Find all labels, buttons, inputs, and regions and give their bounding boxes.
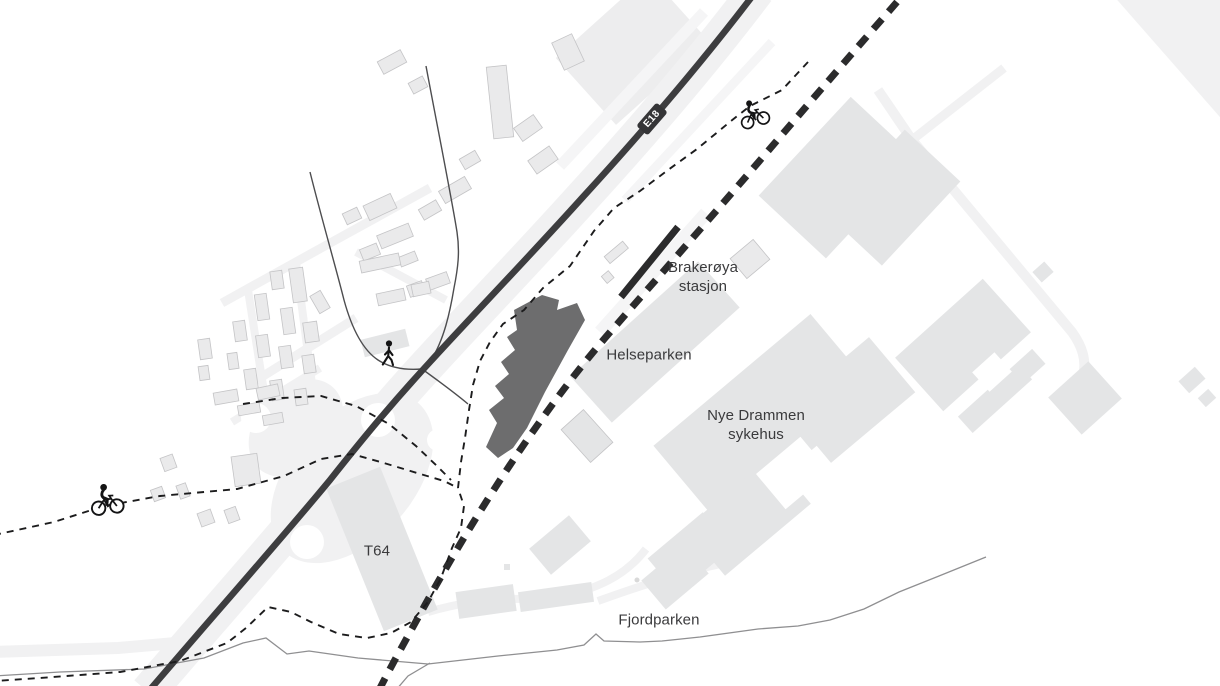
site-plan-map: Brakerøya stasjon Helseparken Nye Dramme… [0, 0, 1220, 686]
roundabout [290, 525, 324, 559]
label-t64: T64 [364, 542, 390, 561]
label-helseparken: Helseparken [606, 346, 691, 365]
label-nye-drammen-sykehus: Nye Drammen sykehus [707, 406, 805, 444]
label-fjordparken: Fjordparken [618, 611, 699, 630]
label-brakeroya-stasjon: Brakerøya stasjon [668, 258, 738, 296]
roundabout [427, 429, 449, 451]
map-graphics [0, 0, 1220, 686]
